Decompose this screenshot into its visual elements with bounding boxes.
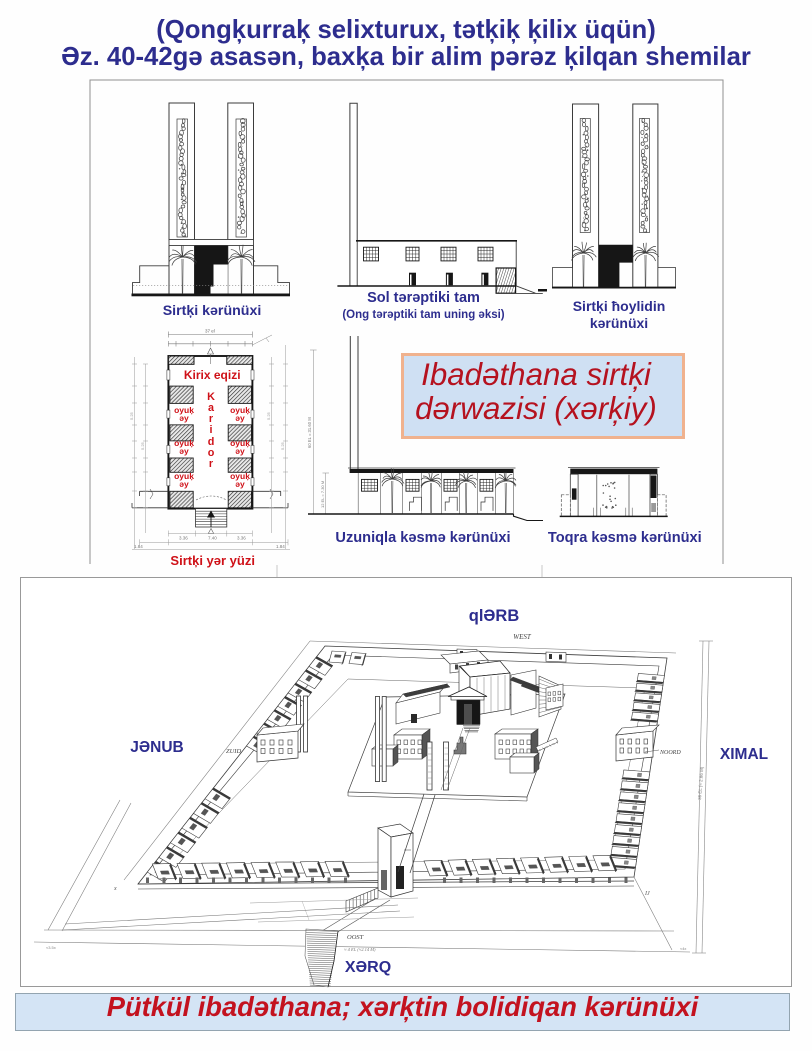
svg-text:5.25: 5.25 xyxy=(280,441,285,450)
svg-text:≈3.5x: ≈3.5x xyxy=(46,945,56,950)
svg-text:12 EL = 7.30 M: 12 EL = 7.30 M xyxy=(320,481,325,508)
svg-text:60 EL = 31.60 M: 60 EL = 31.60 M xyxy=(307,417,312,448)
svg-text:OOST: OOST xyxy=(347,934,364,941)
svg-text:5.25: 5.25 xyxy=(266,411,271,420)
svg-text:NOORD: NOORD xyxy=(659,750,681,756)
svg-text:IJ: IJ xyxy=(644,891,650,897)
svg-text:5.25: 5.25 xyxy=(129,411,134,420)
svg-text:3.36: 3.36 xyxy=(179,536,188,541)
svg-text:x: x xyxy=(113,886,117,892)
svg-text:ZUID: ZUID xyxy=(226,748,241,755)
svg-text:1.84: 1.84 xyxy=(276,544,285,549)
svg-text:5.25: 5.25 xyxy=(140,441,145,450)
svg-text:37 el: 37 el xyxy=(205,329,215,334)
svg-text:7.40: 7.40 xyxy=(208,536,217,541)
svg-text:3.36: 3.36 xyxy=(237,536,246,541)
svg-text:≈4x: ≈4x xyxy=(680,946,686,951)
svg-text:1.84: 1.84 xyxy=(134,544,143,549)
svg-text:≈ 4 EL (≈2.14 M): ≈ 4 EL (≈2.14 M) xyxy=(344,947,376,952)
